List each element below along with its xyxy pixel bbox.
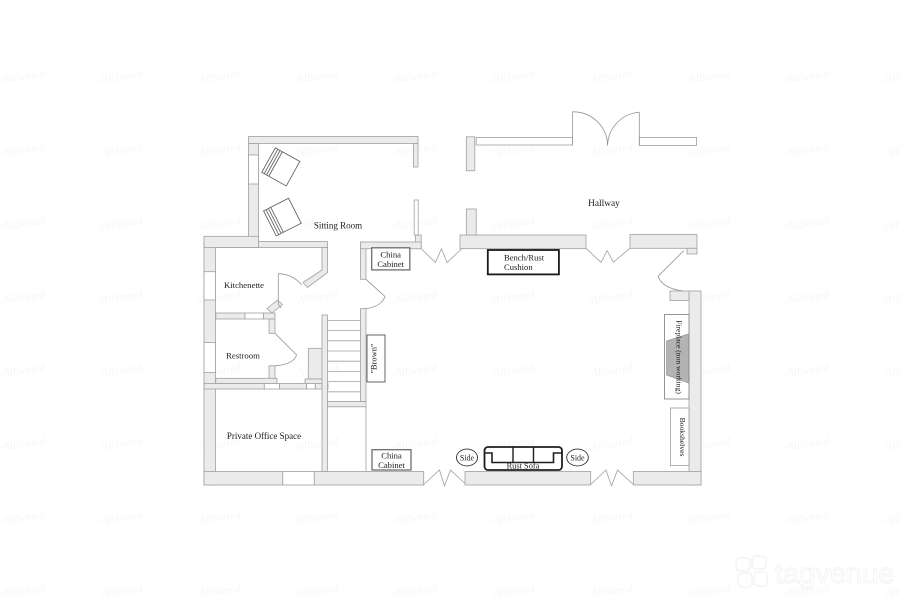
svg-text:∕AllSorted: ∕AllSorted [0, 288, 46, 306]
svg-text:∕AllSorted: ∕AllSorted [0, 215, 46, 233]
svg-text:∕AllSorted: ∕AllSorted [0, 509, 46, 527]
svg-text:∕AllSorted: ∕AllSorted [293, 288, 340, 306]
svg-text:Fireplace (non working): Fireplace (non working) [675, 320, 684, 394]
svg-text:∕AllSorted: ∕AllSorted [685, 215, 732, 233]
svg-text:∕AllSorted: ∕AllSorted [489, 215, 536, 233]
svg-text:Side: Side [570, 454, 585, 463]
svg-text:∕AllSorted: ∕AllSorted [587, 68, 634, 86]
svg-text:∕AllSorted: ∕AllSorted [391, 582, 438, 600]
svg-text:∕AllSorted: ∕AllSorted [881, 509, 900, 527]
svg-text:∕AllSorted: ∕AllSorted [195, 288, 242, 306]
svg-text:∕AllSorted: ∕AllSorted [391, 68, 438, 86]
svg-text:∕AllSorted: ∕AllSorted [391, 509, 438, 527]
svg-text:∕AllSorted: ∕AllSorted [97, 509, 144, 527]
svg-text:∕AllSorted: ∕AllSorted [0, 582, 46, 600]
svg-text:∕AllSorted: ∕AllSorted [391, 362, 438, 380]
svg-text:∕AllSorted: ∕AllSorted [783, 288, 830, 306]
svg-text:∕AllSorted: ∕AllSorted [293, 141, 340, 159]
svg-text:∕AllSorted: ∕AllSorted [685, 68, 732, 86]
svg-text:∕AllSorted: ∕AllSorted [97, 288, 144, 306]
svg-text:∕AllSorted: ∕AllSorted [783, 68, 830, 86]
svg-text:tagvenue: tagvenue [775, 558, 894, 590]
svg-text:∕AllSorted: ∕AllSorted [0, 435, 46, 453]
svg-text:∕AllSorted: ∕AllSorted [97, 68, 144, 86]
svg-text:∕AllSorted: ∕AllSorted [783, 509, 830, 527]
svg-text:∕AllSorted: ∕AllSorted [293, 68, 340, 86]
svg-text:Hallway: Hallway [588, 199, 620, 209]
svg-text:∕AllSorted: ∕AllSorted [97, 582, 144, 600]
svg-text:∕AllSorted: ∕AllSorted [0, 362, 46, 380]
svg-text:∕AllSorted: ∕AllSorted [489, 288, 536, 306]
svg-text:Bookshelves: Bookshelves [678, 418, 687, 457]
svg-text:∕AllSorted: ∕AllSorted [293, 582, 340, 600]
svg-text:China: China [380, 250, 401, 260]
svg-text:Cushion: Cushion [504, 262, 533, 272]
svg-text:∕AllSorted: ∕AllSorted [97, 362, 144, 380]
svg-text:∕AllSorted: ∕AllSorted [881, 68, 900, 86]
svg-text:∕AllSorted: ∕AllSorted [881, 288, 900, 306]
svg-text:"Brown": "Brown" [369, 343, 379, 373]
svg-text:∕AllSorted: ∕AllSorted [685, 509, 732, 527]
svg-text:Sitting Room: Sitting Room [314, 221, 362, 231]
svg-text:Restroom: Restroom [226, 351, 260, 361]
svg-text:Side: Side [460, 454, 475, 463]
svg-text:∕AllSorted: ∕AllSorted [881, 141, 900, 159]
svg-text:∕AllSorted: ∕AllSorted [587, 362, 634, 380]
svg-text:Cabinet: Cabinet [378, 460, 405, 470]
svg-text:Bench/Rust: Bench/Rust [504, 253, 545, 263]
svg-text:∕AllSorted: ∕AllSorted [587, 509, 634, 527]
svg-text:∕AllSorted: ∕AllSorted [195, 582, 242, 600]
svg-text:∕AllSorted: ∕AllSorted [489, 509, 536, 527]
svg-text:Cabinet: Cabinet [377, 259, 404, 269]
svg-text:∕AllSorted: ∕AllSorted [587, 435, 634, 453]
svg-text:∕AllSorted: ∕AllSorted [0, 68, 46, 86]
svg-text:∕AllSorted: ∕AllSorted [881, 435, 900, 453]
svg-text:∕AllSorted: ∕AllSorted [587, 582, 634, 600]
svg-text:∕AllSorted: ∕AllSorted [97, 215, 144, 233]
svg-text:Kitchenette: Kitchenette [224, 280, 264, 290]
svg-text:∕AllSorted: ∕AllSorted [685, 582, 732, 600]
svg-text:Private Office Space: Private Office Space [227, 431, 301, 441]
svg-text:∕AllSorted: ∕AllSorted [783, 362, 830, 380]
svg-text:Rust Sofa: Rust Sofa [507, 461, 540, 470]
svg-text:∕AllSorted: ∕AllSorted [195, 362, 242, 380]
svg-text:∕AllSorted: ∕AllSorted [489, 582, 536, 600]
svg-text:∕AllSorted: ∕AllSorted [783, 435, 830, 453]
svg-text:∕AllSorted: ∕AllSorted [391, 288, 438, 306]
svg-text:∕AllSorted: ∕AllSorted [783, 141, 830, 159]
svg-text:∕AllSorted: ∕AllSorted [195, 141, 242, 159]
svg-text:∕AllSorted: ∕AllSorted [587, 141, 634, 159]
svg-text:∕AllSorted: ∕AllSorted [489, 362, 536, 380]
svg-text:∕AllSorted: ∕AllSorted [587, 288, 634, 306]
svg-text:∕AllSorted: ∕AllSorted [195, 215, 242, 233]
svg-text:∕AllSorted: ∕AllSorted [489, 68, 536, 86]
svg-text:∕AllSorted: ∕AllSorted [0, 141, 46, 159]
svg-text:∕AllSorted: ∕AllSorted [97, 141, 144, 159]
svg-text:∕AllSorted: ∕AllSorted [587, 215, 634, 233]
svg-text:∕AllSorted: ∕AllSorted [195, 509, 242, 527]
svg-text:∕AllSorted: ∕AllSorted [783, 215, 830, 233]
svg-text:∕AllSorted: ∕AllSorted [881, 215, 900, 233]
svg-text:∕AllSorted: ∕AllSorted [97, 435, 144, 453]
svg-text:∕AllSorted: ∕AllSorted [195, 68, 242, 86]
svg-text:∕AllSorted: ∕AllSorted [293, 509, 340, 527]
svg-text:∕AllSorted: ∕AllSorted [881, 362, 900, 380]
